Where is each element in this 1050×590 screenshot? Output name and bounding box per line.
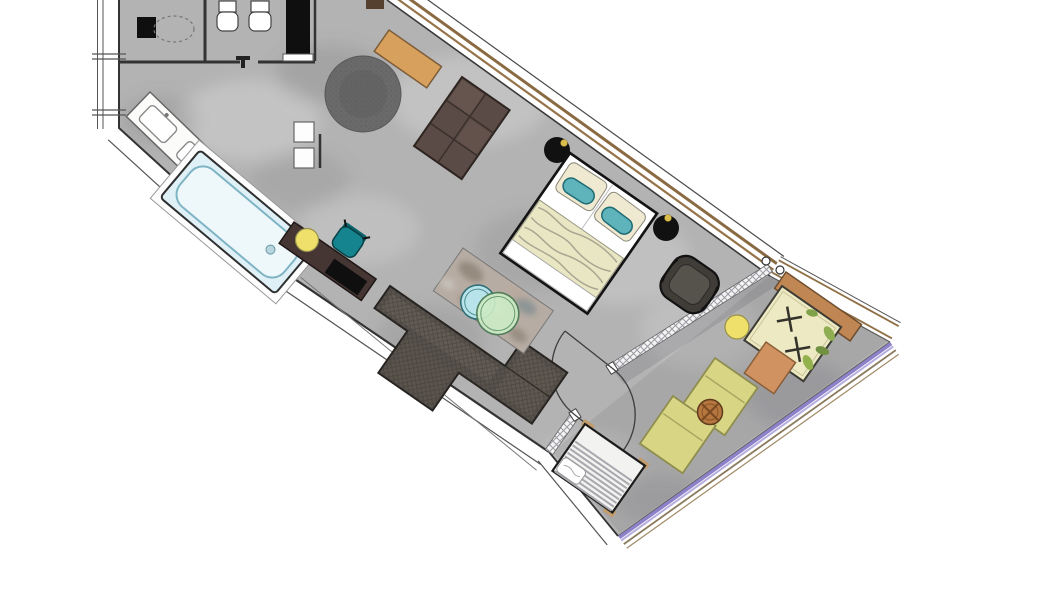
- nightstand-left: [544, 137, 570, 163]
- wardrobe: [283, 0, 313, 61]
- pivot-point: [762, 257, 770, 265]
- floor-plan-canvas: [0, 0, 1050, 590]
- wall-stub: [366, 0, 384, 9]
- stool-yellow: [296, 229, 319, 252]
- bidet-icon: [249, 1, 271, 31]
- round-wood-table: [698, 400, 723, 425]
- toilet-icon: [217, 1, 238, 31]
- terrace-stool: [725, 315, 749, 339]
- dark-cabinet: [137, 17, 156, 38]
- floor-plan: [0, 0, 1050, 590]
- pivot-point: [776, 266, 784, 274]
- round-rug: [325, 56, 401, 132]
